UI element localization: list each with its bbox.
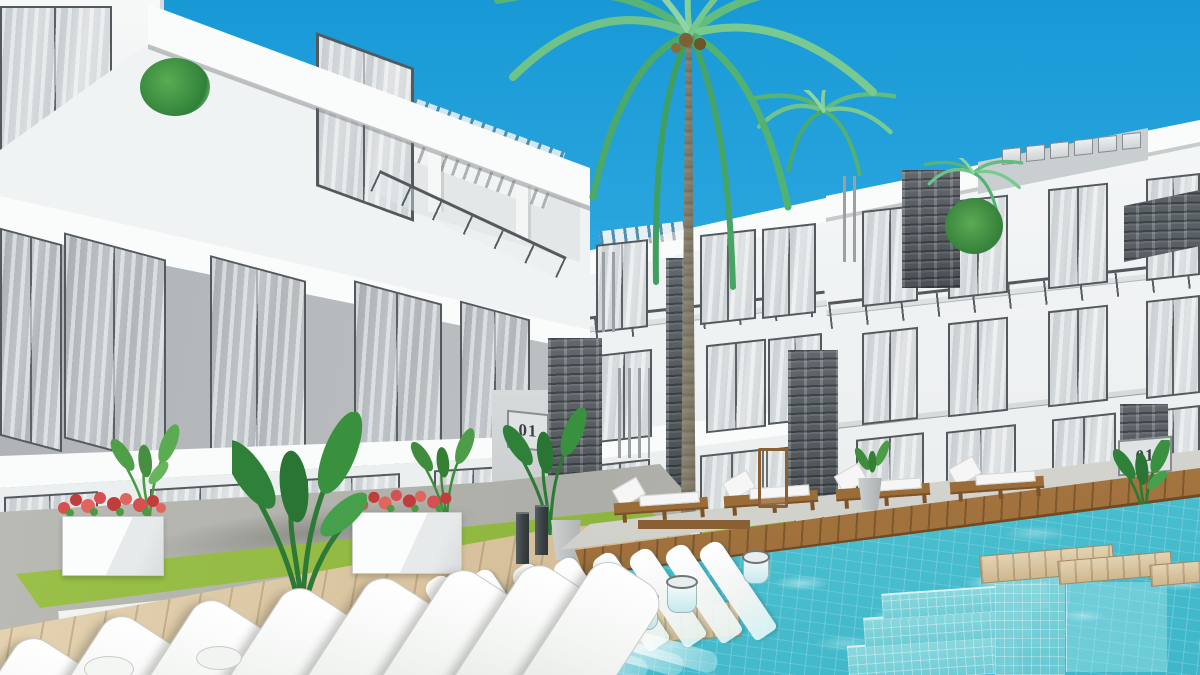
palm-tree-crown	[428, 0, 948, 382]
potted-plant	[496, 408, 601, 538]
terrace-greenery	[140, 58, 210, 116]
pool-side-table	[743, 554, 769, 584]
deck-side-table	[84, 656, 134, 675]
bollard-light	[516, 512, 529, 564]
pool-side-table	[667, 579, 697, 613]
platform-glass-side	[1066, 582, 1167, 672]
louver-vent	[1122, 132, 1141, 150]
louver-vent	[1074, 138, 1093, 156]
louver-vent	[1050, 141, 1069, 159]
platform-tiled-side	[995, 572, 1065, 675]
wooden-bench	[638, 520, 750, 529]
louver-vent	[1098, 135, 1117, 153]
window	[1048, 305, 1108, 408]
balcony-plant	[945, 198, 1003, 254]
potted-plant	[838, 436, 908, 496]
planter-box	[62, 516, 164, 576]
planter-box	[352, 512, 462, 574]
architectural-render-scene: 01	[0, 0, 1200, 675]
window	[948, 317, 1008, 418]
window	[1048, 183, 1108, 290]
deck-side-table	[196, 646, 242, 670]
towel-ladder-rack	[758, 448, 788, 508]
window	[1146, 295, 1200, 399]
pool-wood-platform	[1149, 559, 1200, 587]
window	[0, 228, 62, 453]
bollard-light	[535, 505, 548, 555]
